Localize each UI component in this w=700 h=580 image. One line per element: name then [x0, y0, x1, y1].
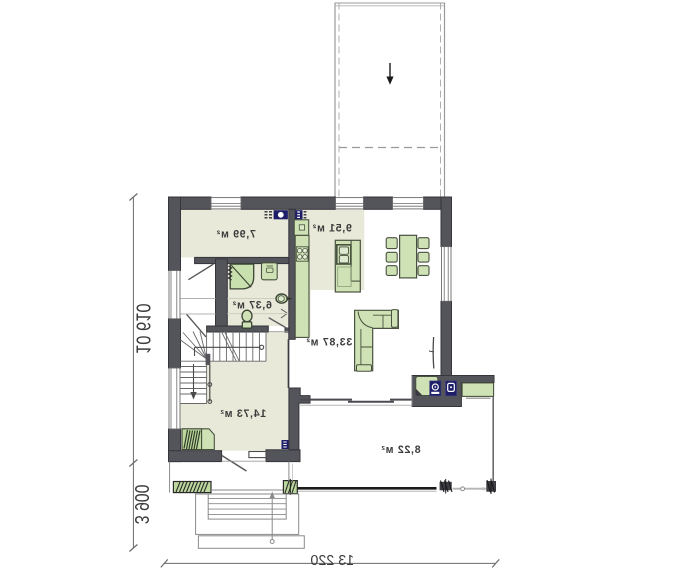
svg-text:10 610: 10 610: [131, 303, 153, 354]
svg-text:3 900: 3 900: [130, 485, 152, 525]
svg-text:7,99 м²: 7,99 м²: [216, 229, 256, 241]
svg-text:8,22 м²: 8,22 м²: [381, 444, 421, 456]
svg-text:9,51 м²: 9,51 м²: [312, 222, 352, 234]
svg-text:33,87 м²: 33,87 м²: [306, 337, 352, 349]
svg-text:6,37 м²: 6,37 м²: [232, 300, 272, 312]
svg-text:13 220: 13 220: [310, 553, 354, 569]
svg-text:14,73 м²: 14,73 м²: [220, 408, 266, 420]
